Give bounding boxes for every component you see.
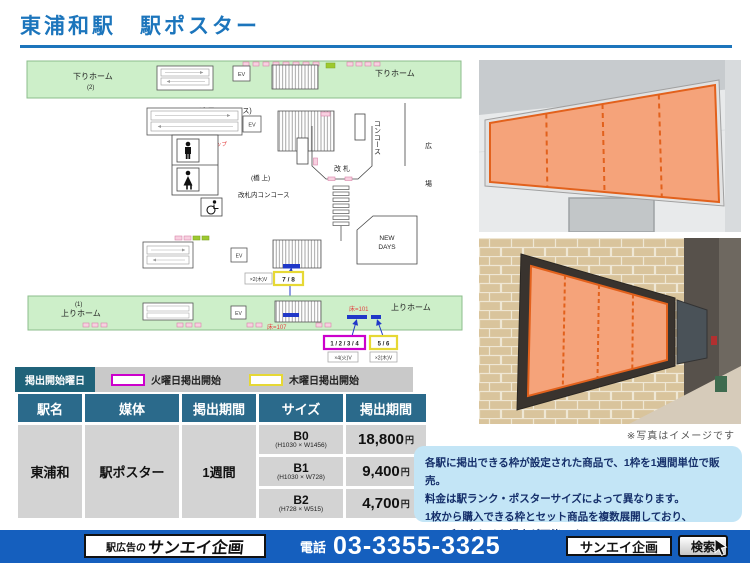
table-row: B2 (H728 × W515) 4,700円 xyxy=(259,489,426,518)
ad-location-bar xyxy=(371,315,381,319)
photo-poster-board-ceiling xyxy=(479,60,741,232)
header-media: 媒体 xyxy=(85,394,179,422)
side-panel xyxy=(677,300,707,364)
header: 東浦和駅 駅ポスター xyxy=(20,10,732,48)
svg-text:1 / 2 / 3 / 4: 1 / 2 / 3 / 4 xyxy=(330,342,359,348)
sign-red xyxy=(711,336,717,345)
ad-location-bar xyxy=(347,315,367,319)
concourse-escalator xyxy=(147,108,242,135)
svg-text:EV: EV xyxy=(236,254,243,260)
header-period: 掲出期間 xyxy=(182,394,256,422)
size-cell-b1: B1 (H1030 × W728) xyxy=(259,457,343,486)
ad-location-bar xyxy=(283,264,300,269)
svg-text:EV: EV xyxy=(238,72,246,78)
door-panel xyxy=(569,198,654,232)
search-input[interactable]: サンエイ企画 xyxy=(566,536,672,556)
info-box: 各駅に掲出できる枠が設定された商品で、1枠を1週間単位で販売。 料金は駅ランク・… xyxy=(414,446,742,522)
legend-thursday-label: 木曜日掲出開始 xyxy=(289,372,359,387)
size-cell-b2: B2 (H728 × W515) xyxy=(259,489,343,518)
cursor-icon xyxy=(714,538,732,556)
svg-text:EV: EV xyxy=(235,311,242,317)
floor-code-107: 床=107 xyxy=(267,323,287,331)
plaza-label: 場 xyxy=(425,179,432,188)
photo-poster-board-brick xyxy=(479,238,741,424)
legend-tuesday-label: 火曜日掲出開始 xyxy=(151,372,221,387)
table-row: B1 (H1030 × W728) 9,400円 xyxy=(259,457,426,486)
station-cell: 東浦和 xyxy=(18,425,82,518)
svg-text:×2(木)V: ×2(木)V xyxy=(250,276,268,283)
sign-tick xyxy=(326,63,335,68)
size-cell-b0: B0 (H1030 × W1456) xyxy=(259,425,343,454)
elevator: EV xyxy=(231,248,247,262)
bridge-label: (橋 上) xyxy=(251,173,270,182)
elevator: EV xyxy=(243,116,261,132)
thursday-swatch xyxy=(249,374,283,386)
table-row: B0 (H1030 × W1456) 18,800円 xyxy=(259,425,426,454)
title-underline xyxy=(20,45,732,48)
sign-board xyxy=(715,376,727,392)
platform-up: (1) 上りホーム 上りホーム EV xyxy=(28,296,462,331)
price-cell-b0: 18,800円 xyxy=(346,425,426,454)
newdays-shop: NEW DAYS xyxy=(357,216,417,264)
media-cell: 駅ポスター xyxy=(85,425,179,518)
stairs xyxy=(275,301,321,322)
period-cell: 1週間 xyxy=(182,425,256,518)
svg-text:5 / 6: 5 / 6 xyxy=(378,342,390,348)
svg-text:下りホーム: 下りホーム xyxy=(73,72,113,81)
legend-title: 掲出開始曜日 xyxy=(15,367,95,392)
footer-bar: 駅広告の サンエイ企画 電話 03-3355-3325 サンエイ企画 検索 xyxy=(0,530,750,563)
svg-text:下りホーム: 下りホーム xyxy=(375,69,415,78)
platform-down: 下りホーム (2) 下りホーム xyxy=(27,61,461,98)
gate-concourse-label: 改札内コンコース xyxy=(238,190,290,199)
svg-text:(2): (2) xyxy=(87,85,94,91)
poster-ticks xyxy=(175,236,209,240)
svg-text:上りホーム: 上りホーム xyxy=(391,303,431,312)
phone-label: 電話 xyxy=(300,537,326,556)
table-header-row: 駅名 媒体 掲出期間 サイズ 掲出期間 xyxy=(18,394,426,422)
company-logo: 駅広告の サンエイ企画 xyxy=(84,534,266,558)
station-map: 下りホーム (2) 下りホーム xyxy=(25,58,465,370)
plaza-label: 広 xyxy=(425,141,432,150)
stairs xyxy=(272,65,318,89)
photo-caption: ※写真はイメージです xyxy=(480,427,735,442)
wall-corner xyxy=(725,60,741,232)
svg-text:×2(木)V: ×2(木)V xyxy=(375,354,393,361)
svg-text:NEW: NEW xyxy=(379,235,395,242)
phone: 電話 03-3355-3325 xyxy=(300,532,501,561)
stairs xyxy=(273,240,321,268)
header-station: 駅名 xyxy=(18,394,82,422)
table-body: 東浦和 駅ポスター 1週間 B0 (H1030 × W1456) 18,800円… xyxy=(18,425,426,518)
floor-code-101: 床=101 xyxy=(349,305,369,313)
escalator xyxy=(157,66,213,90)
concourse-label: コンコース xyxy=(374,120,382,155)
info-line: 料金は駅ランク・ポスターサイズによって異なります。 xyxy=(425,490,731,508)
toilets xyxy=(172,135,222,216)
phone-number: 03-3355-3325 xyxy=(333,532,501,561)
svg-text:上りホーム: 上りホーム xyxy=(61,309,101,318)
page: 東浦和駅 駅ポスター 下りホーム (2) xyxy=(0,0,750,563)
escalator xyxy=(143,242,193,268)
page-title: 東浦和駅 駅ポスター xyxy=(20,10,732,40)
info-line: 各駅に掲出できる枠が設定された商品で、1枠を1週間単位で販売。 xyxy=(425,454,731,490)
elevator: EV xyxy=(233,66,250,81)
svg-text:7 / 8: 7 / 8 xyxy=(282,276,295,283)
logo-name: サンエイ企画 xyxy=(147,534,246,558)
svg-text:×4(火)V: ×4(火)V xyxy=(334,355,352,361)
poster-tick xyxy=(321,112,330,116)
tuesday-swatch xyxy=(111,374,145,386)
escalator xyxy=(143,303,193,320)
svg-text:(1): (1) xyxy=(75,302,82,308)
station-map-svg: 下りホーム (2) 下りホーム xyxy=(25,58,465,370)
header-price: 掲出期間 xyxy=(346,394,426,422)
svg-text:DAYS: DAYS xyxy=(378,244,396,251)
logo-prefix: 駅広告の xyxy=(106,539,146,554)
price-table: 駅名 媒体 掲出期間 サイズ 掲出期間 東浦和 駅ポスター 1週間 B0 (H1… xyxy=(18,394,426,518)
elevator: EV xyxy=(231,306,246,319)
header-size: サイズ xyxy=(259,394,343,422)
info-line: 1枚から購入できる枠とセット商品を複数展開しており、 xyxy=(425,508,731,526)
legend: 掲出開始曜日 火曜日掲出開始 木曜日掲出開始 xyxy=(15,367,413,392)
svg-text:EV: EV xyxy=(248,123,256,129)
svg-text:改 札: 改 札 xyxy=(334,164,350,173)
ad-location-bar xyxy=(283,313,299,317)
steps xyxy=(333,186,349,226)
